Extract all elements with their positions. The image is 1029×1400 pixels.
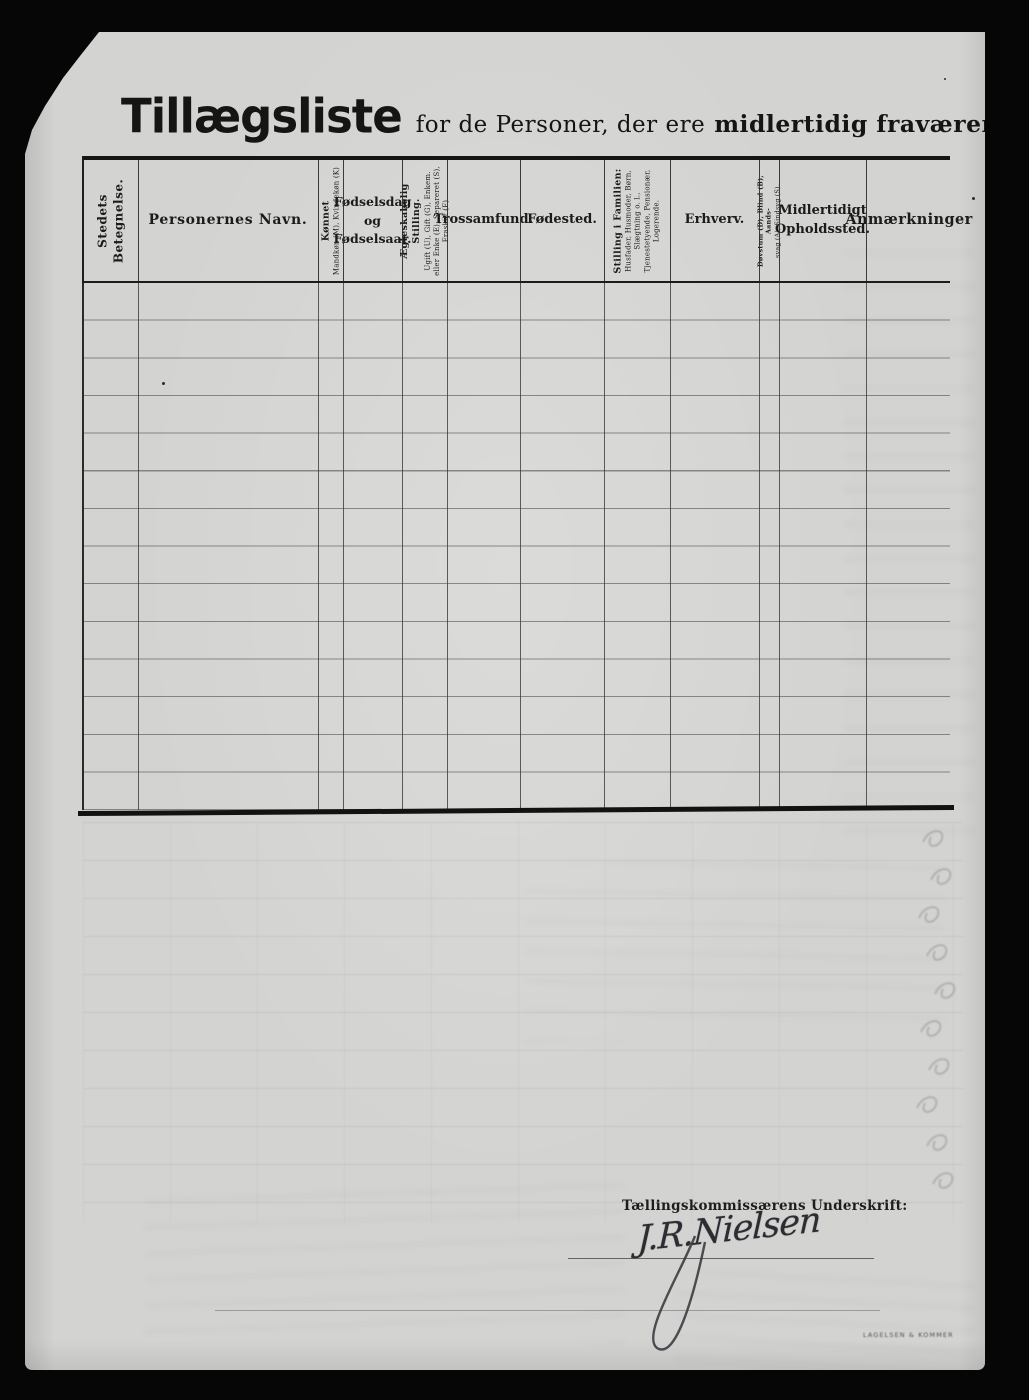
title-subtitle-regular: for de Personer, der ere: [416, 112, 705, 138]
column-header-text: Stilling i Familien:: [613, 162, 625, 280]
title-subtitle-bold: midlertidig fraværende.: [714, 110, 1029, 138]
column-header-stilling-i-familien: Stilling i Familien:Husfader, Husmoder, …: [604, 160, 670, 281]
column-rule: [343, 283, 344, 810]
census-form-page: Tillægsliste for de Personer, der ere mi…: [25, 32, 985, 1370]
column-rule: [604, 160, 605, 281]
column-header-text: Stedets Betegnelse.: [95, 162, 126, 280]
column-header-personernes-navn: Personernes Navn.: [138, 160, 318, 281]
column-rule: [670, 283, 671, 810]
column-header-text: Trossamfund.: [434, 212, 533, 228]
title-main: Tillægsliste: [121, 89, 402, 144]
printer-imprint: LAGELSEN & KOMMER: [863, 1331, 954, 1339]
table-header: Stedets Betegnelse.Personernes Navn.Kønn…: [82, 156, 950, 283]
column-header-foedested: Fødested.: [520, 160, 604, 281]
column-rule: [138, 283, 139, 810]
column-header-text: Tjenestetyende, Pensionær,: [643, 162, 652, 280]
column-header-text: Mandkøn (M), Kvindekøn (K): [332, 162, 341, 280]
column-rule: [520, 160, 521, 281]
column-header-text: Logerende.: [652, 162, 661, 280]
column-header-trossamfund: Trossamfund.: [447, 160, 520, 281]
column-header-foedselsdag: FødselsdagogFødselsaar.: [343, 160, 402, 281]
column-header-text: Erhverv.: [685, 212, 745, 228]
column-rule: [759, 160, 760, 281]
column-rule: [447, 160, 448, 281]
column-header-text: Fødested.: [527, 212, 597, 228]
bleedthrough-marks: [853, 820, 983, 1210]
column-header-text: Anmærkninger: [845, 211, 972, 229]
column-rule: [604, 283, 605, 810]
column-header-erhverv: Erhverv.: [670, 160, 759, 281]
column-rule: [402, 160, 403, 281]
column-header-text: Ugift (U), Gift (G), Enkem.: [423, 162, 432, 280]
column-rule: [402, 283, 403, 810]
column-header-stedets-betegnelse: Stedets Betegnelse.: [84, 160, 138, 281]
column-rule: [866, 160, 867, 281]
ink-speck: [944, 78, 946, 80]
column-rule: [520, 283, 521, 810]
column-header-text: Slægtning o. l.,: [634, 162, 643, 280]
table-body: [82, 283, 950, 810]
column-rule: [866, 283, 867, 810]
census-table: Stedets Betegnelse.Personernes Navn.Kønn…: [82, 156, 950, 810]
scan-background: Tillægsliste for de Personer, der ere mi…: [0, 0, 1029, 1400]
column-header-koennet: KønnetMandkøn (M), Kvindekøn (K): [318, 160, 343, 281]
column-header-anmaerkninger: Anmærkninger: [866, 160, 952, 281]
column-header-text: Kønnet: [320, 162, 332, 280]
column-rule: [318, 160, 319, 281]
bleedthrough-grid: [83, 822, 963, 1222]
column-header-text: Personernes Navn.: [149, 212, 308, 230]
column-rule: [779, 160, 780, 281]
column-header-doevstum-blind: Døvstum (D), Blind (B), Aands-svag (A), …: [759, 160, 779, 281]
column-rule: [779, 283, 780, 810]
column-rule: [138, 160, 139, 281]
ink-speck: [972, 197, 975, 200]
bleedthrough-smudge: [145, 1182, 625, 1342]
column-rule: [759, 283, 760, 810]
ink-speck: [162, 382, 165, 385]
column-header-text: og: [364, 213, 381, 229]
column-header-text: Husfader, Husmoder, Børn,: [625, 162, 634, 280]
column-rule: [670, 160, 671, 281]
bleedthrough-line: [215, 1310, 880, 1311]
page-title: Tillægsliste for de Personer, der ere mi…: [121, 90, 1029, 143]
column-rule: [343, 160, 344, 281]
column-rule: [318, 283, 319, 810]
column-rule: [447, 283, 448, 810]
